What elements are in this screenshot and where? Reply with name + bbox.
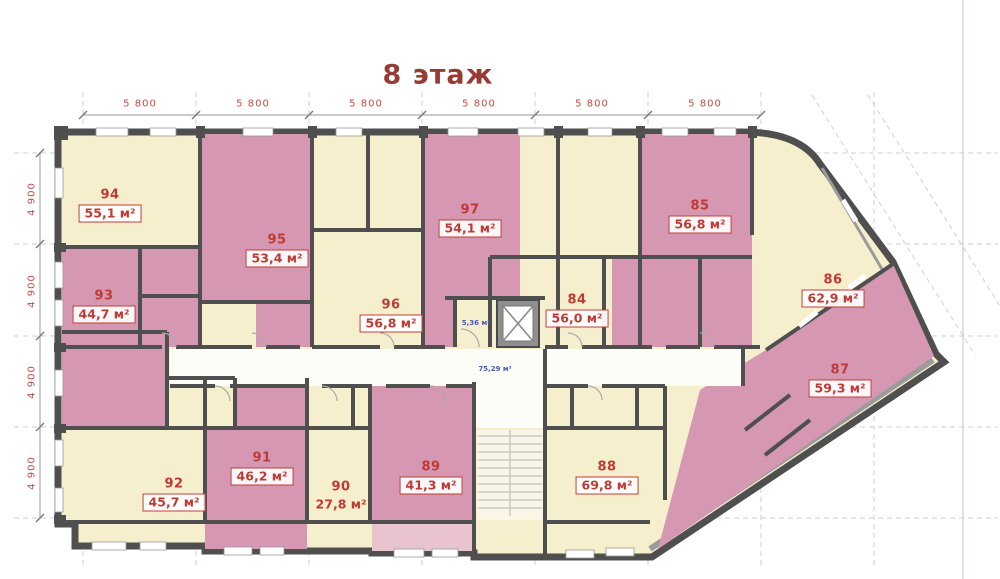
apartment-label: 97 54,1 м² <box>439 203 502 238</box>
page-edge-line <box>962 0 964 579</box>
corridor-area-annotation: 75,29 м² <box>478 365 511 373</box>
apartment-label: 89 41,3 м² <box>400 460 463 495</box>
elevator-shaft <box>497 300 539 347</box>
apartment-label: 84 56,0 м² <box>546 293 609 328</box>
apartment-area: 56,8 м² <box>669 216 732 234</box>
apartment-label: 92 45,7 м² <box>143 477 206 512</box>
apartment-area: 46,2 м² <box>231 468 294 486</box>
apartment-label: 88 69,8 м² <box>576 460 639 495</box>
apartment-area: 41,3 м² <box>400 477 463 495</box>
dimension-label-top: 5 800 <box>462 99 496 110</box>
dimension-label-top: 5 800 <box>123 99 157 110</box>
apartment-number: 91 <box>231 451 294 466</box>
apartment-number: 93 <box>73 289 136 304</box>
apartment-area: 54,1 м² <box>439 220 502 238</box>
apartment-label: 94 55,1 м² <box>79 188 142 223</box>
apartment-area: 56,8 м² <box>360 315 423 333</box>
apartment-label: 96 56,8 м² <box>360 298 423 333</box>
apartment-number: 90 <box>316 480 367 495</box>
apartment-label: 85 56,8 м² <box>669 199 732 234</box>
apartment-label: 91 46,2 м² <box>231 451 294 486</box>
apartment-area: 45,7 м² <box>143 494 206 512</box>
apartment-area: 69,8 м² <box>576 477 639 495</box>
apartment-number: 87 <box>809 363 872 378</box>
dimension-label-top: 5 800 <box>349 99 383 110</box>
apartment-label: 90 27,8 м² <box>316 480 367 513</box>
dimension-label-left: 4 900 <box>27 274 38 308</box>
apartment-number: 86 <box>802 273 865 288</box>
dimension-label-left: 4 900 <box>27 365 38 399</box>
dimension-label-top: 5 800 <box>236 99 270 110</box>
apartment-area: 53,4 м² <box>246 250 309 268</box>
apartment-label: 87 59,3 м² <box>809 363 872 398</box>
apartment-area: 56,0 м² <box>546 310 609 328</box>
apartment-number: 89 <box>400 460 463 475</box>
apartment-label: 86 62,9 м² <box>802 273 865 308</box>
apartment-area: 62,9 м² <box>802 290 865 308</box>
apartment-number: 85 <box>669 199 732 214</box>
dimension-label-top: 5 800 <box>575 99 609 110</box>
apartment-number: 94 <box>79 188 142 203</box>
apartment-area: 55,1 м² <box>79 205 142 223</box>
floor-plan-page: 8 этаж 5 800 5 800 5 800 5 800 5 800 5 8… <box>0 0 1000 579</box>
apartment-label: 93 44,7 м² <box>73 289 136 324</box>
apartment-number: 92 <box>143 477 206 492</box>
apartment-number: 88 <box>576 460 639 475</box>
dimension-label-top: 5 800 <box>688 99 722 110</box>
floor-title: 8 этаж <box>383 60 494 91</box>
apartment-label: 95 53,4 м² <box>246 233 309 268</box>
stairwell <box>477 430 543 520</box>
apartment-number: 95 <box>246 233 309 248</box>
apartment-area: 59,3 м² <box>809 380 872 398</box>
dimension-label-left: 4 900 <box>27 182 38 216</box>
dimension-label-left: 4 900 <box>27 456 38 490</box>
lobby-area-annotation: 5,36 м² <box>462 319 491 327</box>
apartment-number: 84 <box>546 293 609 308</box>
apartment-number: 97 <box>439 203 502 218</box>
apartment-number: 96 <box>360 298 423 313</box>
apartment-area: 27,8 м² <box>316 497 367 513</box>
apartment-area: 44,7 м² <box>73 306 136 324</box>
